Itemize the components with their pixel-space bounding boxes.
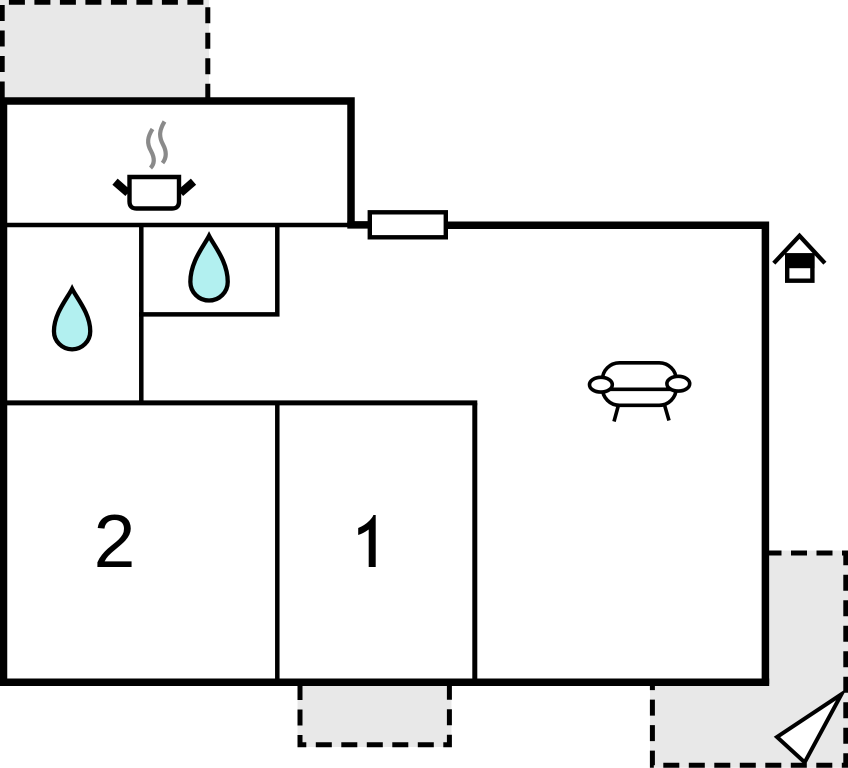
- svg-text:2: 2: [94, 499, 136, 583]
